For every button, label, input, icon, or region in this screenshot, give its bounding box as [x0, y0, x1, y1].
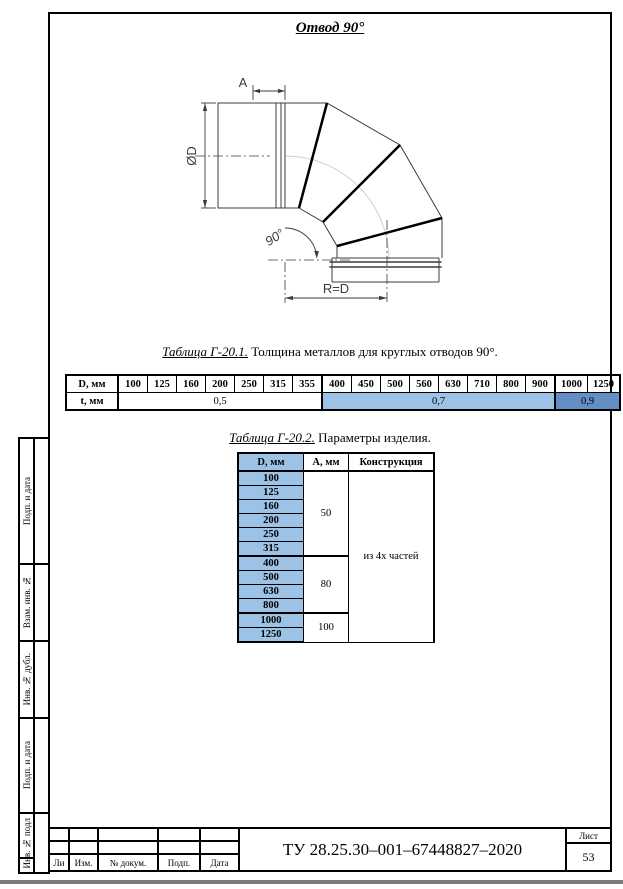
- sheet-box: Лист 53: [565, 827, 612, 872]
- cell: 125: [238, 486, 304, 500]
- page-title: Отвод 90°: [48, 20, 612, 37]
- col-label: № докум.: [99, 855, 159, 870]
- cell: 0,9: [555, 393, 620, 411]
- sidebar-box-podp-i-data-1: Подп. и дата: [18, 437, 50, 565]
- thickness-table: D, мм 100 125 160 200 250 315 355 400 45…: [65, 374, 621, 411]
- cell: D, мм: [66, 375, 118, 393]
- elbow-drawing: ØD A 90° R=D: [180, 70, 480, 320]
- cell: 500: [238, 571, 304, 585]
- col-label: Подп.: [159, 855, 201, 870]
- cell: 500: [381, 375, 410, 393]
- cell: 800: [497, 375, 526, 393]
- sidebar-label: Подп. и дата: [22, 477, 32, 525]
- cell: 315: [238, 542, 304, 557]
- seam-line: [337, 218, 442, 246]
- cell: 160: [177, 375, 206, 393]
- sidebar-label: Подп. и дата: [22, 741, 32, 789]
- cell: 200: [206, 375, 235, 393]
- sidebar-box-podp-i-data-2: Подп. и дата: [18, 717, 50, 814]
- cell: 1000: [238, 613, 304, 628]
- col-label: Ли: [50, 855, 70, 870]
- cell: 100: [118, 375, 148, 393]
- cell: [70, 842, 99, 855]
- table2-caption: Таблица Г-20.2. Параметры изделия.: [48, 430, 612, 446]
- diameter-label: ØD: [184, 146, 199, 166]
- table-row: D, мм 100 125 160 200 250 315 355 400 45…: [66, 375, 620, 393]
- sidebar-divider: [18, 857, 33, 859]
- cell: D, мм: [238, 453, 304, 471]
- cell: 50: [304, 471, 349, 556]
- table1-caption: Таблица Г-20.1. Толщина металлов для кру…: [48, 344, 612, 360]
- cell: 160: [238, 500, 304, 514]
- sidebar-box-inv-dubl: Инв. № дубл.: [18, 640, 50, 719]
- cell: 900: [526, 375, 556, 393]
- sidebar-label: Взам. инв. №: [22, 576, 32, 628]
- sheet-label: Лист: [567, 829, 610, 844]
- seam-line: [323, 145, 400, 222]
- document-page: Отвод 90° ØD: [0, 0, 623, 889]
- sidebar-box-inv-podl: Инв. № подл: [18, 812, 50, 874]
- sidebar-label: Инв. № дубл.: [22, 653, 32, 705]
- cell: [201, 829, 238, 842]
- cell: 1250: [588, 375, 621, 393]
- cell: 0,5: [118, 393, 322, 411]
- page-edge-bar: [0, 880, 623, 884]
- cell: 630: [439, 375, 468, 393]
- cell: 0,7: [322, 393, 555, 411]
- col-label: Изм.: [70, 855, 99, 870]
- cell: 80: [304, 556, 349, 613]
- angle-label: 90°: [262, 226, 287, 249]
- titleblock-revision-grid: Ли Изм. № докум. Подп. Дата: [48, 827, 240, 872]
- cell: 200: [238, 514, 304, 528]
- cell: [50, 842, 70, 855]
- table-row: D, мм A, мм Конструкция: [238, 453, 434, 471]
- cell: 560: [410, 375, 439, 393]
- sidebar-label: Инв. № подл: [22, 818, 32, 868]
- parameters-table: D, мм A, мм Конструкция 100 50 из 4х час…: [237, 452, 435, 643]
- cell: из 4х частей: [349, 471, 435, 642]
- cell: 250: [235, 375, 264, 393]
- cell: 400: [238, 556, 304, 571]
- cell: 355: [293, 375, 323, 393]
- cell: [99, 842, 159, 855]
- table-row: 100 50 из 4х частей: [238, 471, 434, 486]
- sheet-number: 53: [567, 844, 610, 870]
- cell: t, мм: [66, 393, 118, 411]
- cell: 315: [264, 375, 293, 393]
- sidebar-box-vzam-inv: Взам. инв. №: [18, 563, 50, 642]
- document-number: ТУ 28.25.30–001–67448827–2020: [238, 827, 567, 872]
- cell: 800: [238, 599, 304, 614]
- cell: 100: [304, 613, 349, 642]
- cell: 1000: [555, 375, 588, 393]
- seam-line: [299, 103, 327, 208]
- cell: [99, 829, 159, 842]
- cell: 450: [352, 375, 381, 393]
- cell: [201, 842, 238, 855]
- cell: [70, 829, 99, 842]
- radius-label: R=D: [323, 281, 349, 296]
- cell: A, мм: [304, 453, 349, 471]
- col-label: Дата: [201, 855, 238, 870]
- cell: Конструкция: [349, 453, 435, 471]
- a-dimension-label: A: [239, 75, 248, 90]
- cell: 100: [238, 471, 304, 486]
- cell: [159, 829, 201, 842]
- cell: 1250: [238, 628, 304, 643]
- inlet-pipe: [218, 103, 285, 208]
- cell: [50, 829, 70, 842]
- cell: 125: [148, 375, 177, 393]
- cell: 400: [322, 375, 352, 393]
- cell: 710: [468, 375, 497, 393]
- cell: 630: [238, 585, 304, 599]
- cell: 250: [238, 528, 304, 542]
- cell: [159, 842, 201, 855]
- table-row: t, мм 0,5 0,7 0,9: [66, 393, 620, 411]
